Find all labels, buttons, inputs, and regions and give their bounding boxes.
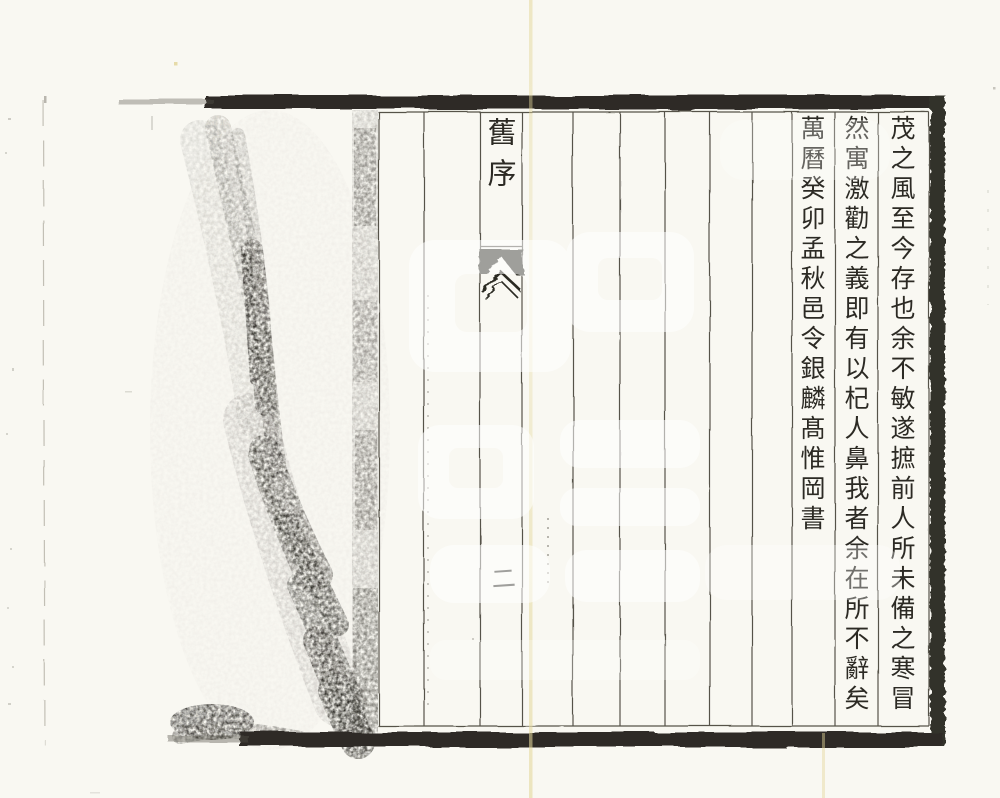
- text-column-2: 然寓激勸之義即有以杞人鼻我者余在所不辭矣: [843, 115, 868, 715]
- right-border: [930, 95, 945, 747]
- banxin-title: 舊序: [485, 117, 514, 199]
- fold-crease-bottom: [822, 733, 825, 798]
- text-column-1: 茂之風至今存也余不敏遂摭前人所未備之寒冒: [889, 115, 914, 715]
- scanned-page: 茂之風至今存也余不敏遂摭前人所未備之寒冒 然寓激勸之義即有以杞人鼻我者余在所不辭…: [0, 0, 1000, 798]
- bottom-border: [240, 732, 942, 747]
- page-number: 二: [488, 565, 514, 591]
- bottom-border-faded: [168, 735, 248, 742]
- top-border: [205, 95, 942, 109]
- text-column-3: 萬曆癸卯孟秋邑令銀麟髙惟岡書: [799, 115, 824, 535]
- gutter-smudge: [352, 110, 378, 746]
- fold-crease: [529, 0, 533, 798]
- top-border-faded: [118, 99, 213, 104]
